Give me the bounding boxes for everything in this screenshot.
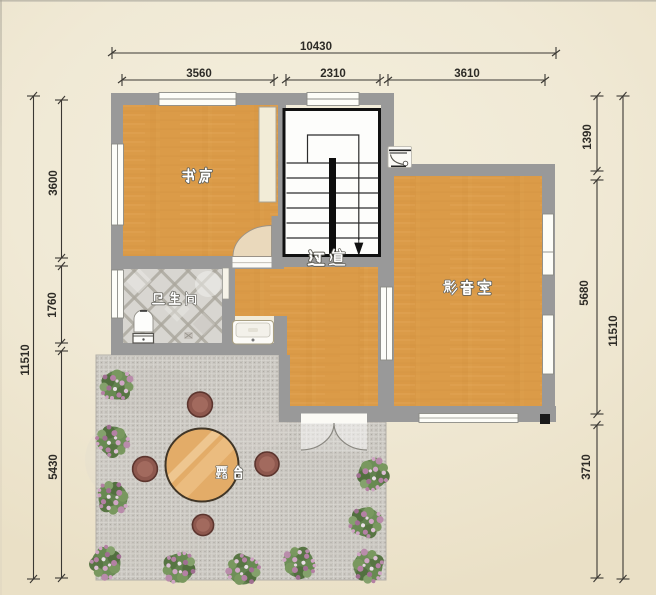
svg-text:11510: 11510 (608, 315, 620, 346)
svg-text:3610: 3610 (454, 68, 480, 80)
svg-text:10430: 10430 (300, 41, 332, 53)
svg-text:3600: 3600 (48, 170, 60, 196)
svg-text:11510: 11510 (20, 344, 32, 375)
svg-text:2310: 2310 (320, 68, 346, 80)
svg-text:5430: 5430 (48, 454, 60, 480)
svg-text:3560: 3560 (186, 68, 212, 80)
svg-text:3710: 3710 (581, 454, 593, 480)
svg-text:1390: 1390 (582, 124, 594, 150)
svg-text:5680: 5680 (579, 280, 591, 306)
svg-text:1760: 1760 (47, 292, 59, 318)
